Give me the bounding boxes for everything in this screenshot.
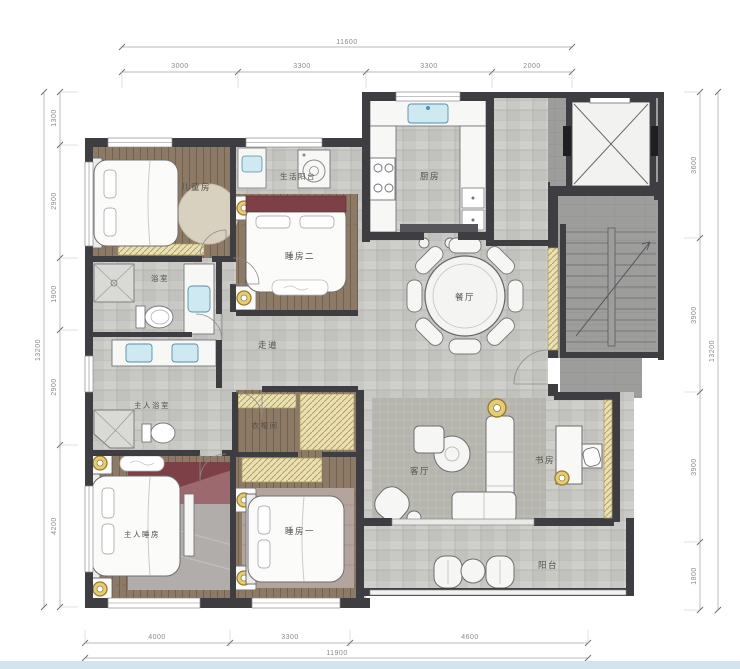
window-icon bbox=[246, 138, 322, 147]
room-label-master-bathroom: 主人浴室 bbox=[134, 400, 170, 410]
room-label-master-bedroom: 主人睡房 bbox=[124, 529, 160, 539]
dim-right-overall: 13200 bbox=[709, 340, 716, 362]
window-sill-icon bbox=[548, 248, 558, 350]
room-kitchen: 厨房 bbox=[370, 100, 486, 248]
bar-counter bbox=[400, 224, 478, 233]
dim-top-overall: 11600 bbox=[336, 39, 357, 46]
window-icon bbox=[252, 598, 340, 608]
bed-icon bbox=[246, 196, 346, 295]
window-sill-icon bbox=[604, 400, 612, 518]
shower-icon bbox=[94, 264, 134, 302]
dim-top-seg0: 3000 bbox=[171, 63, 189, 70]
armchair-icon bbox=[414, 426, 444, 453]
dim-right-seg3: 1800 bbox=[691, 567, 698, 585]
room-corridor: 走道 bbox=[258, 340, 278, 350]
toilet-icon bbox=[142, 423, 175, 443]
dim-top-seg1: 3300 bbox=[293, 63, 311, 70]
sink-icon bbox=[126, 344, 152, 362]
room-label-bedroom-two: 睡房二 bbox=[285, 251, 315, 261]
room-label-corridor: 走道 bbox=[258, 340, 278, 350]
wardrobe-icon bbox=[300, 394, 354, 450]
washer-icon bbox=[298, 150, 330, 188]
wardrobe-icon bbox=[238, 394, 296, 408]
room-label-bathroom: 浴室 bbox=[151, 273, 169, 283]
window-icon bbox=[85, 162, 93, 246]
room-label-living: 客厅 bbox=[410, 466, 430, 476]
wardrobe-icon bbox=[242, 458, 322, 482]
bed-icon bbox=[92, 158, 178, 248]
dim-top-seg2: 3300 bbox=[420, 63, 438, 70]
dim-bottom-seg2: 4600 bbox=[461, 634, 479, 641]
window-icon bbox=[85, 356, 93, 392]
sink-icon bbox=[172, 344, 198, 362]
sink-icon bbox=[188, 286, 210, 312]
window-icon bbox=[108, 138, 172, 147]
sink-icon bbox=[242, 156, 262, 172]
stove-icon bbox=[370, 158, 395, 200]
dim-bottom-seg1: 3300 bbox=[281, 634, 299, 641]
window-icon bbox=[396, 92, 460, 101]
room-master-bedroom: 主人睡房 bbox=[88, 452, 232, 600]
dim-right-seg0: 3600 bbox=[691, 156, 698, 174]
room-label-dining: 餐厅 bbox=[455, 292, 475, 302]
dim-right-seg2: 3900 bbox=[691, 458, 698, 476]
room-label-bedroom-one: 睡房一 bbox=[285, 526, 315, 536]
dim-left-overall: 13200 bbox=[35, 339, 42, 361]
bed-icon bbox=[90, 474, 194, 578]
toilet-icon bbox=[136, 306, 173, 328]
window-icon bbox=[108, 598, 200, 608]
room-label-balcony: 阳台 bbox=[538, 560, 558, 570]
bench bbox=[184, 494, 194, 556]
dim-left-seg2: 1900 bbox=[51, 285, 58, 303]
room-label-cloakroom: 衣帽间 bbox=[252, 420, 279, 430]
room-label-study: 书房 bbox=[535, 455, 555, 465]
room-label-children: 儿童房 bbox=[181, 182, 211, 192]
sliding-door-icon bbox=[392, 519, 534, 525]
lounge-chair-icon bbox=[434, 556, 462, 588]
room-label-kitchen: 厨房 bbox=[420, 171, 440, 181]
dim-right-seg1: 3900 bbox=[691, 306, 698, 324]
room-label-service-balcony: 生活阳台 bbox=[280, 171, 316, 181]
dim-left-seg1: 2900 bbox=[51, 192, 58, 210]
dim-left-seg0: 1300 bbox=[51, 109, 58, 127]
dim-bottom-overall: 11900 bbox=[326, 650, 347, 657]
patio-table bbox=[461, 559, 485, 583]
lounge-chair-icon bbox=[486, 556, 514, 588]
bottom-bar bbox=[0, 661, 740, 669]
floor-plan-canvas: 儿童房 生活阳台 睡房二 bbox=[0, 0, 740, 669]
dim-top-seg3: 2000 bbox=[523, 63, 541, 70]
window-icon bbox=[85, 486, 93, 572]
dim-left-seg3: 2900 bbox=[51, 378, 58, 396]
floor-plan-page: 儿童房 生活阳台 睡房二 bbox=[0, 0, 740, 669]
dim-left-seg4: 4200 bbox=[51, 517, 58, 535]
tag bbox=[120, 456, 164, 471]
dim-bottom-seg0: 4000 bbox=[148, 634, 166, 641]
round-rug bbox=[178, 184, 238, 244]
study-balcony-floor bbox=[548, 392, 634, 596]
bed-icon bbox=[246, 494, 344, 584]
balcony-railing bbox=[370, 590, 626, 595]
